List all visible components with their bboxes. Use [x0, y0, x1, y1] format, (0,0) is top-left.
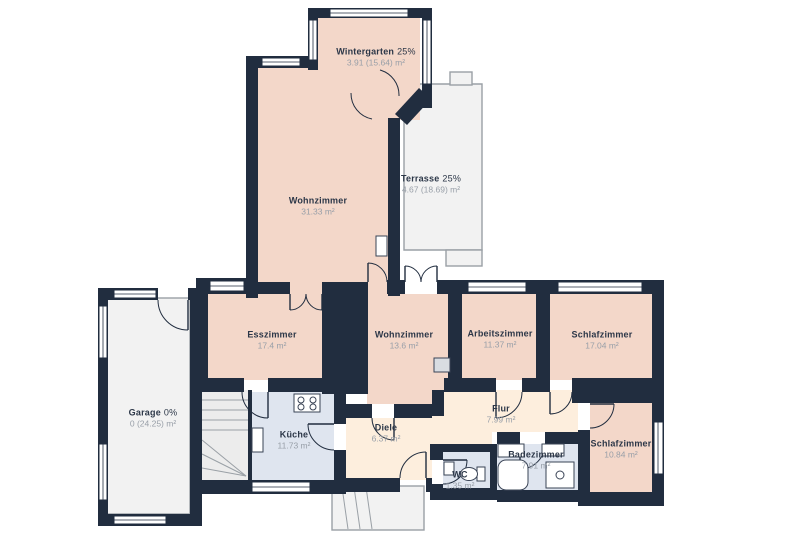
room-floor-flur-2	[432, 432, 492, 446]
floorplan-svg	[0, 0, 800, 533]
wc-washbasin	[444, 462, 454, 475]
room-floor-kueche	[252, 392, 334, 482]
floor-plan: Wintergarten25% 3.91 (15.64) m² Wohnzimm…	[0, 0, 800, 533]
room-floor-schlafzimmer-klein	[590, 403, 654, 493]
bath-washbasin	[498, 444, 524, 457]
shaft	[434, 358, 450, 372]
room-floor-diele	[346, 418, 432, 480]
room-floor-garage	[106, 298, 190, 514]
room-floor-wohnzimmer-klein	[367, 294, 448, 404]
radiator	[376, 236, 387, 256]
bathtub	[498, 460, 528, 490]
stove	[294, 394, 320, 412]
room-floor-arbeitszimmer	[462, 294, 538, 380]
bath-washbasin-2	[542, 444, 564, 456]
kitchen-sink	[252, 428, 263, 452]
room-floor-flur	[432, 390, 578, 432]
room-floor-schlafzimmer-gross	[550, 294, 654, 380]
toilet	[461, 467, 486, 481]
shower	[546, 462, 574, 488]
room-floor-esszimmer	[208, 292, 324, 380]
room-floor-wohnzimmer-gross	[256, 66, 390, 296]
staircase	[202, 390, 248, 482]
